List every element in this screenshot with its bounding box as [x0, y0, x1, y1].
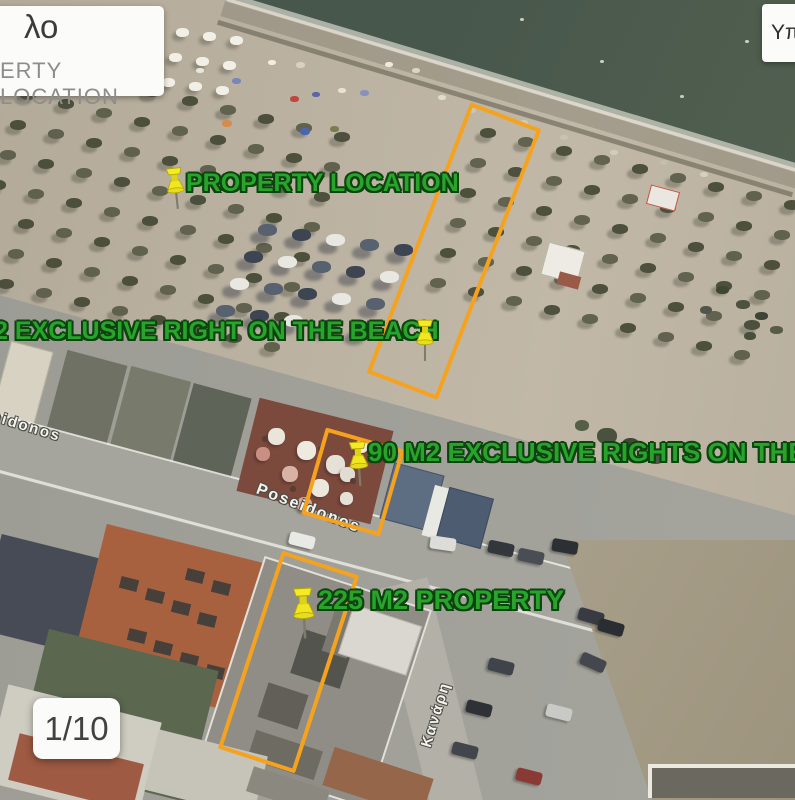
- pushpin-icon: [286, 585, 321, 643]
- legend-box: Υπ: [762, 4, 795, 62]
- legend-text: Υπ: [762, 21, 795, 45]
- pushpin-icon: [412, 318, 438, 364]
- satellite-photo[interactable]: Poseidonos Poseidonos Κανάρη PROPERTY LO…: [0, 0, 795, 800]
- caption-greek-text: λο: [24, 8, 58, 46]
- beach-rights-pin: [412, 318, 438, 369]
- beach-bar-pin: [343, 439, 375, 495]
- property-location-pin: [160, 165, 191, 218]
- pushpin-icon: [343, 439, 374, 490]
- pushpin-icon: [160, 165, 191, 213]
- photo-counter-text: 1/10: [44, 710, 108, 748]
- pushpins: [0, 0, 795, 800]
- caption-box: λο ERTY LOCATION: [0, 6, 164, 96]
- caption-subtitle: ERTY LOCATION: [0, 58, 164, 110]
- property-pin: [286, 585, 321, 648]
- photo-counter-badge: 1/10: [33, 698, 120, 759]
